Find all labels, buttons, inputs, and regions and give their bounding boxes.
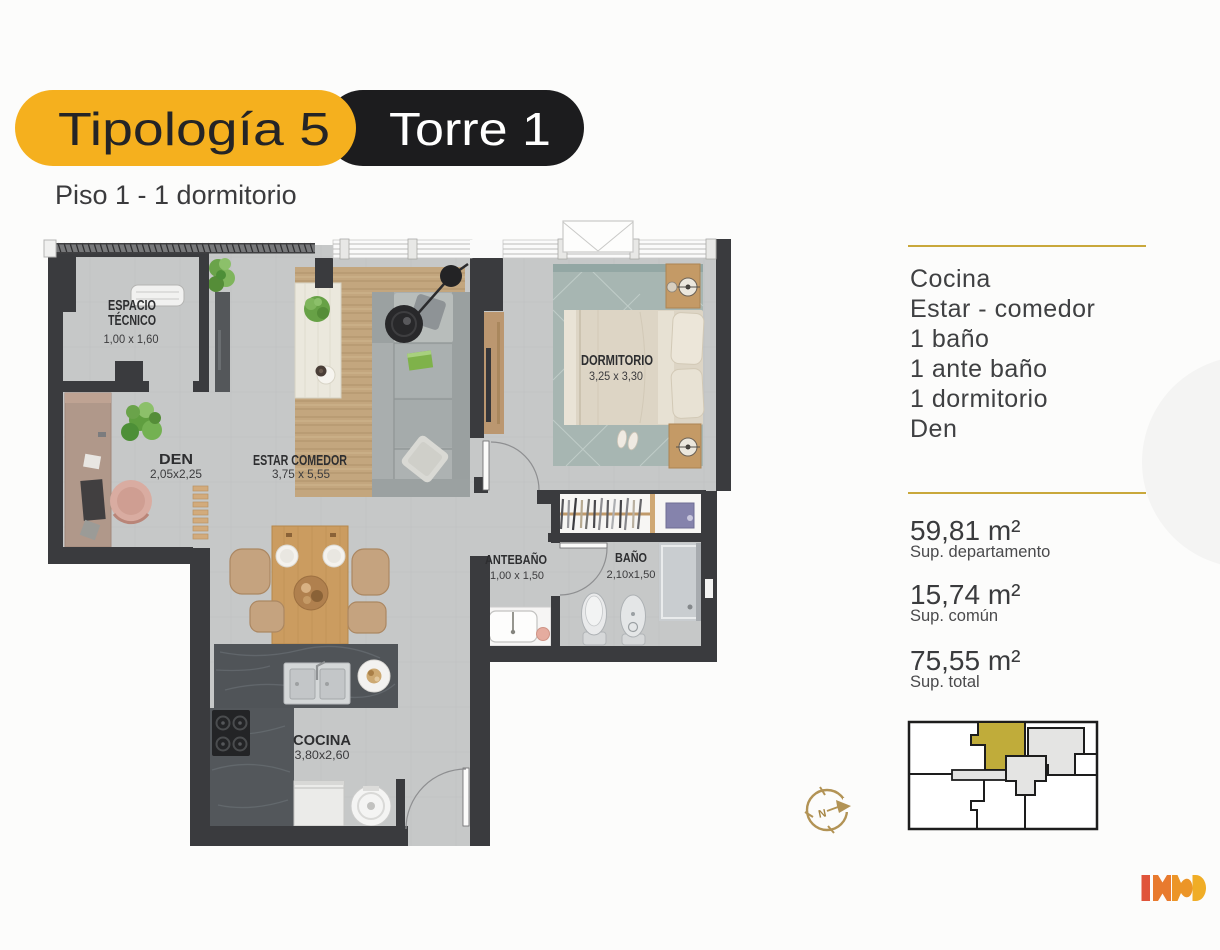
svg-text:Sup. común: Sup. común — [910, 607, 998, 625]
svg-text:Sup. departamento: Sup. departamento — [910, 543, 1050, 561]
svg-text:COCINA: COCINA — [293, 733, 352, 749]
svg-text:Sup. total: Sup. total — [910, 673, 980, 691]
svg-text:Estar - comedor: Estar - comedor — [910, 295, 1095, 323]
svg-text:BAÑO: BAÑO — [615, 550, 647, 565]
svg-text:1,00 x 1,50: 1,00 x 1,50 — [490, 570, 544, 582]
svg-text:DORMITORIO: DORMITORIO — [581, 353, 653, 369]
svg-text:1 baño: 1 baño — [910, 325, 989, 353]
svg-text:3,75 x 5,55: 3,75 x 5,55 — [272, 469, 330, 481]
svg-text:ANTEBAÑO: ANTEBAÑO — [485, 552, 547, 567]
svg-text:Cocina: Cocina — [910, 265, 991, 293]
svg-text:Piso 1 - 1 dormitorio: Piso 1 - 1 dormitorio — [55, 180, 297, 210]
svg-text:DEN: DEN — [159, 452, 193, 468]
svg-text:59,81 m²: 59,81 m² — [910, 515, 1021, 546]
svg-text:15,74 m²: 15,74 m² — [910, 579, 1021, 610]
svg-text:2,10x1,50: 2,10x1,50 — [607, 569, 656, 581]
svg-text:3,80x2,60: 3,80x2,60 — [295, 750, 350, 762]
svg-text:1,00 x 1,60: 1,00 x 1,60 — [104, 334, 159, 346]
svg-text:Torre 1: Torre 1 — [389, 103, 551, 155]
svg-text:ESPACIO: ESPACIO — [108, 298, 156, 314]
svg-text:3,25 x 3,30: 3,25 x 3,30 — [589, 371, 643, 383]
svg-text:1 ante baño: 1 ante baño — [910, 355, 1048, 383]
svg-text:N: N — [817, 807, 827, 820]
svg-text:Tipología 5: Tipología 5 — [58, 103, 330, 155]
svg-text:ESTAR COMEDOR: ESTAR COMEDOR — [253, 453, 347, 469]
svg-text:1 dormitorio: 1 dormitorio — [910, 385, 1048, 413]
svg-text:2,05x2,25: 2,05x2,25 — [150, 469, 202, 481]
svg-text:75,55 m²: 75,55 m² — [910, 645, 1021, 676]
svg-text:TÉCNICO: TÉCNICO — [108, 312, 156, 329]
svg-text:Den: Den — [910, 415, 957, 443]
